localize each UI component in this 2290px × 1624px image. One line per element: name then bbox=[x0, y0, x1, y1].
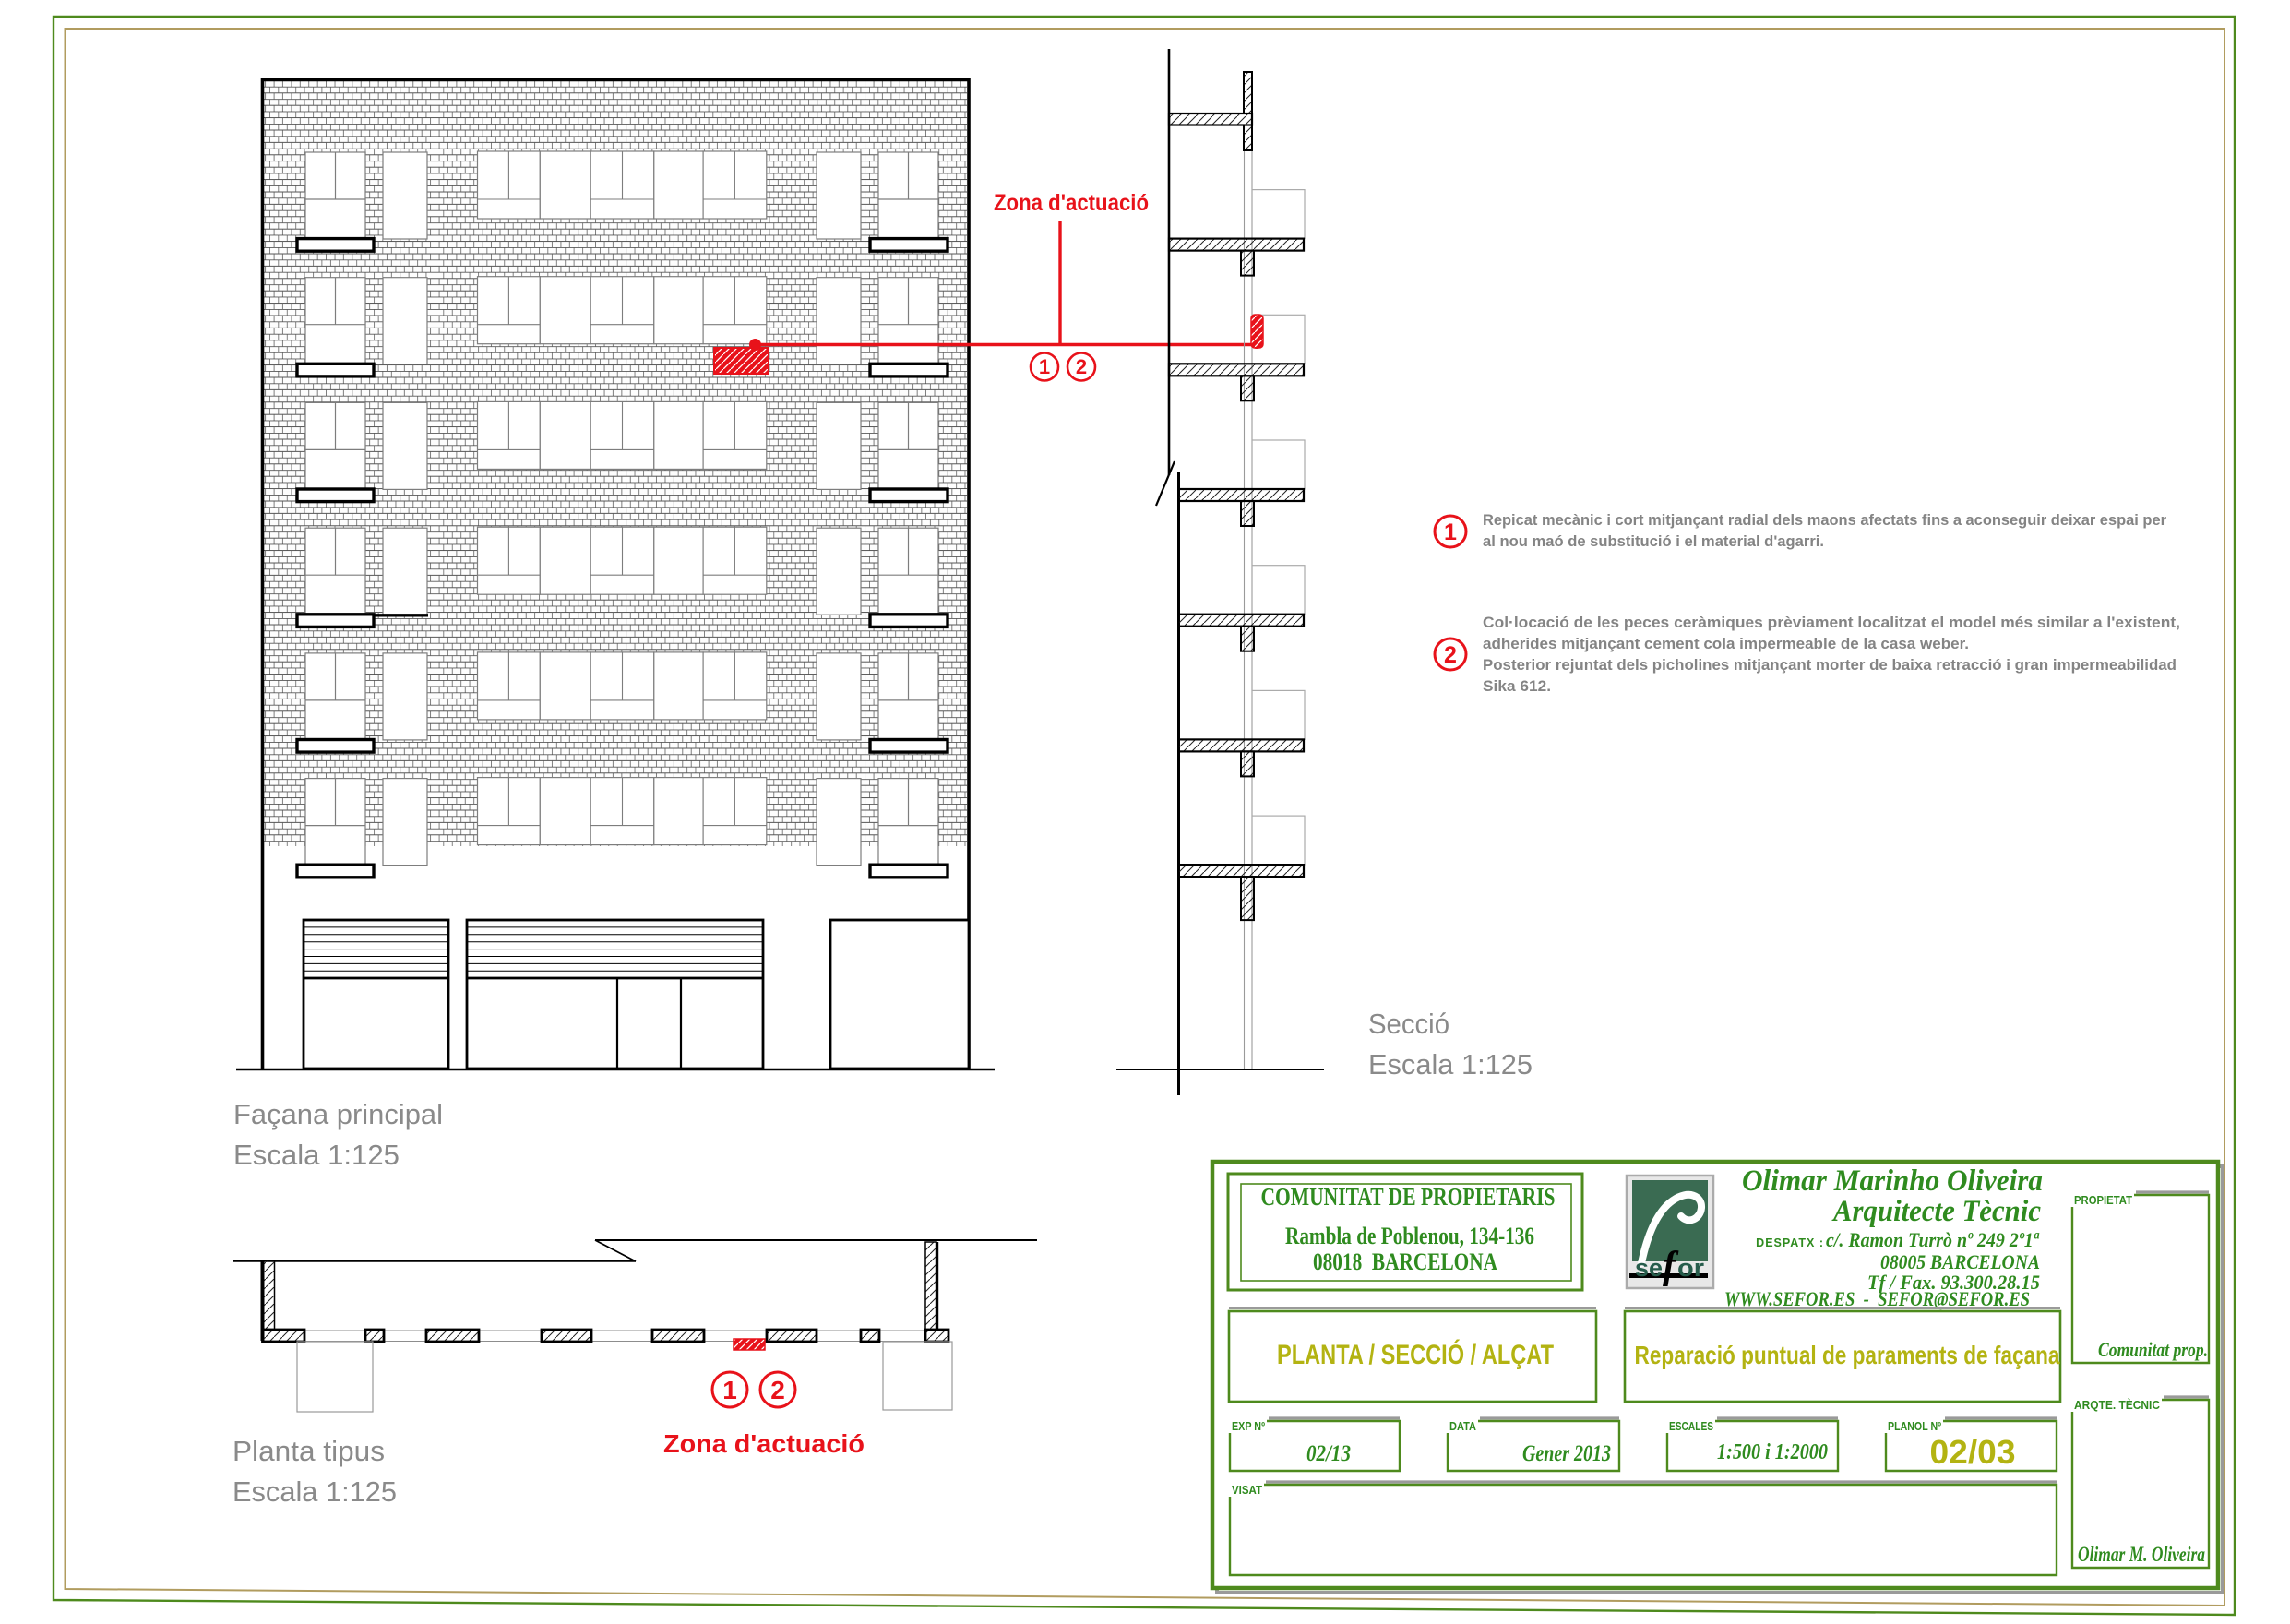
svg-text:Comunitat prop.: Comunitat prop. bbox=[2098, 1338, 2208, 1361]
svg-text:Olimar Marinho Oliveira: Olimar Marinho Oliveira bbox=[1742, 1164, 2043, 1198]
svg-text:Reparació puntual de paraments: Reparació puntual de paraments de façana bbox=[1635, 1341, 2060, 1369]
svg-text:ARQTE. TÈCNIC: ARQTE. TÈCNIC bbox=[2074, 1398, 2160, 1412]
svg-text:VISAT: VISAT bbox=[1232, 1484, 1262, 1497]
svg-text:Rambla de Poblenou, 134-136: Rambla de Poblenou, 134-136 bbox=[1285, 1223, 1534, 1249]
svg-text:DATA: DATA bbox=[1449, 1420, 1476, 1433]
svg-text:Zona d'actuació: Zona d'actuació bbox=[663, 1429, 865, 1458]
svg-text:PLANTA / SECCIÓ / ALÇAT: PLANTA / SECCIÓ / ALÇAT bbox=[1277, 1339, 1554, 1370]
svg-text:Planta tipus: Planta tipus bbox=[233, 1435, 385, 1467]
svg-text:or: or bbox=[1677, 1254, 1705, 1282]
svg-text:al nou maó de substitució i el: al nou maó de substitució i el material … bbox=[1483, 533, 1824, 550]
svg-text:Posterior rejuntat dels pichol: Posterior rejuntat dels picholines mitja… bbox=[1483, 657, 2177, 674]
svg-text:Col·locació de les peces ceràm: Col·locació de les peces ceràmiques prèv… bbox=[1483, 615, 2180, 631]
svg-text:Olimar M. Oliveira: Olimar M. Oliveira bbox=[2078, 1543, 2205, 1566]
svg-text:DESPATX :: DESPATX : bbox=[1756, 1236, 1824, 1249]
svg-text:Secció: Secció bbox=[1368, 1008, 1449, 1040]
svg-text:Escala 1:125: Escala 1:125 bbox=[233, 1475, 397, 1508]
svg-text:se: se bbox=[1635, 1254, 1663, 1282]
svg-text:Arquitecte Tècnic: Arquitecte Tècnic bbox=[1831, 1195, 2041, 1228]
svg-text:Escala 1:125: Escala 1:125 bbox=[233, 1139, 400, 1171]
svg-text:2: 2 bbox=[1076, 355, 1087, 378]
svg-text:08018 BARCELONA: 08018 BARCELONA bbox=[1313, 1248, 1497, 1275]
svg-text:EXP Nº: EXP Nº bbox=[1232, 1420, 1265, 1433]
svg-text:PROPIETAT: PROPIETAT bbox=[2074, 1194, 2132, 1207]
svg-text:c/. Ramon Turrò nº 249 2º1ª: c/. Ramon Turrò nº 249 2º1ª bbox=[1826, 1228, 2040, 1251]
svg-text:1: 1 bbox=[722, 1376, 737, 1404]
svg-text:PLANOL Nº: PLANOL Nº bbox=[1888, 1420, 1941, 1433]
svg-text:Façana principal: Façana principal bbox=[233, 1098, 443, 1130]
svg-text:1: 1 bbox=[1444, 519, 1457, 545]
svg-text:Gener 2013: Gener 2013 bbox=[1522, 1441, 1611, 1466]
svg-text:COMUNITAT DE PROPIETARIS: COMUNITAT DE PROPIETARIS bbox=[1261, 1183, 1556, 1211]
svg-text:Zona d'actuació: Zona d'actuació bbox=[994, 190, 1149, 216]
svg-text:2: 2 bbox=[770, 1376, 785, 1404]
svg-text:Escala 1:125: Escala 1:125 bbox=[1368, 1048, 1533, 1081]
svg-text:02/13: 02/13 bbox=[1306, 1441, 1351, 1466]
svg-text:Repicat mecànic i cort mitjanç: Repicat mecànic i cort mitjançant radial… bbox=[1483, 512, 2167, 529]
svg-text:adherides mitjançant cement co: adherides mitjançant cement cola imperme… bbox=[1483, 636, 1969, 652]
svg-text:1: 1 bbox=[1039, 355, 1050, 378]
svg-text:ESCALES: ESCALES bbox=[1669, 1420, 1713, 1433]
svg-text:02/03: 02/03 bbox=[1930, 1433, 2016, 1471]
svg-text:Sika 612.: Sika 612. bbox=[1483, 678, 1551, 695]
svg-text:1:500 i 1:2000: 1:500 i 1:2000 bbox=[1717, 1440, 1828, 1464]
svg-text:2: 2 bbox=[1444, 642, 1457, 668]
